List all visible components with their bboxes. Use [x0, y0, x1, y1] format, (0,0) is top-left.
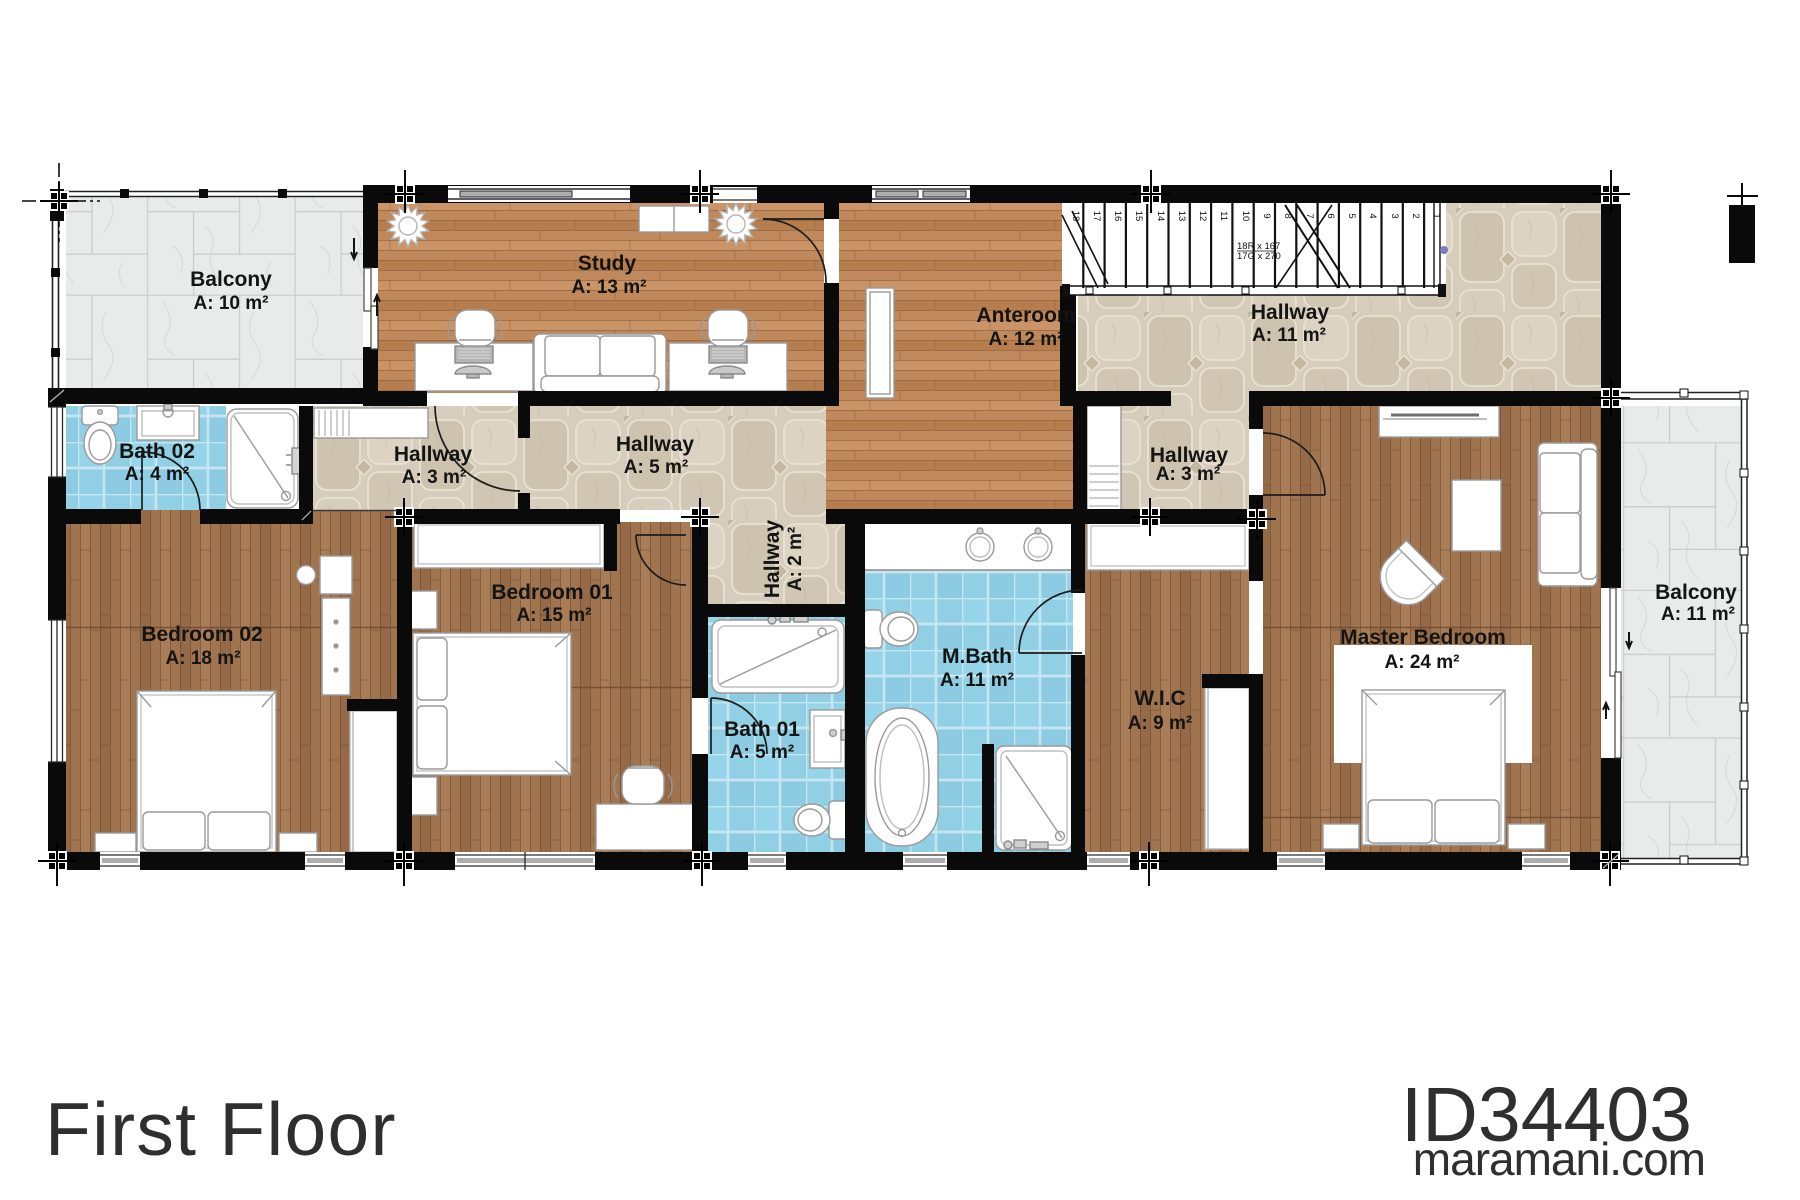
svg-text:A: 3 m²: A: 3 m² — [1156, 464, 1220, 485]
svg-text:6: 6 — [1325, 213, 1336, 218]
svg-text:11: 11 — [1218, 211, 1229, 221]
svg-text:1: 1 — [1431, 213, 1442, 218]
svg-text:Balcony: Balcony — [190, 268, 272, 291]
svg-text:A: 4 m²: A: 4 m² — [125, 464, 189, 485]
svg-text:Hallway: Hallway — [616, 433, 695, 456]
svg-text:8: 8 — [1282, 213, 1293, 218]
svg-text:14: 14 — [1155, 211, 1166, 222]
svg-text:Anteroom: Anteroom — [976, 304, 1075, 327]
svg-text:2: 2 — [1410, 213, 1421, 218]
svg-text:A: 2 m²: A: 2 m² — [785, 527, 806, 591]
svg-text:Balcony: Balcony — [1655, 581, 1737, 604]
svg-text:A: 11 m²: A: 11 m² — [940, 670, 1014, 691]
svg-text:17G x 270: 17G x 270 — [1237, 251, 1281, 262]
svg-text:A: 24 m²: A: 24 m² — [1385, 652, 1460, 673]
svg-text:A: 11 m²: A: 11 m² — [1252, 325, 1326, 346]
svg-text:Hallway: Hallway — [1251, 301, 1330, 324]
svg-text:5: 5 — [1346, 213, 1357, 218]
svg-text:16: 16 — [1112, 211, 1123, 222]
svg-text:Bedroom 01: Bedroom 01 — [491, 581, 613, 604]
svg-text:A: 12 m²: A: 12 m² — [989, 329, 1064, 350]
svg-text:A: 5 m²: A: 5 m² — [624, 457, 688, 478]
svg-text:A: 5 m²: A: 5 m² — [730, 742, 794, 763]
svg-text:A: 11 m²: A: 11 m² — [1661, 604, 1735, 625]
svg-text:17: 17 — [1091, 211, 1102, 222]
svg-text:7: 7 — [1304, 213, 1315, 218]
svg-text:Bath 01: Bath 01 — [724, 718, 800, 741]
svg-text:3: 3 — [1389, 213, 1400, 218]
svg-text:A: 3 m²: A: 3 m² — [402, 467, 466, 488]
svg-text:M.Bath: M.Bath — [942, 645, 1012, 668]
svg-text:13: 13 — [1176, 211, 1187, 222]
svg-text:15: 15 — [1133, 211, 1144, 222]
svg-text:9: 9 — [1261, 213, 1272, 218]
svg-text:4: 4 — [1367, 213, 1378, 218]
svg-text:A: 10 m²: A: 10 m² — [194, 293, 269, 314]
svg-text:Hallway: Hallway — [761, 520, 784, 599]
svg-text:A: 18 m²: A: 18 m² — [166, 648, 241, 669]
svg-text:Study: Study — [578, 252, 637, 275]
svg-text:Bedroom 02: Bedroom 02 — [141, 623, 262, 646]
svg-text:W.I.C: W.I.C — [1134, 687, 1185, 710]
svg-text:18: 18 — [1070, 211, 1081, 222]
svg-text:maramani.com: maramani.com — [1413, 1133, 1705, 1185]
svg-text:Hallway: Hallway — [394, 443, 473, 466]
svg-text:First Floor: First Floor — [45, 1087, 397, 1171]
svg-text:A: 13 m²: A: 13 m² — [572, 277, 647, 298]
svg-text:A: 9 m²: A: 9 m² — [1128, 713, 1192, 734]
svg-text:Master Bedroom: Master Bedroom — [1340, 626, 1506, 649]
svg-text:12: 12 — [1197, 211, 1208, 222]
svg-text:A: 15 m²: A: 15 m² — [517, 605, 592, 626]
svg-text:Bath 02: Bath 02 — [119, 440, 195, 463]
svg-text:10: 10 — [1240, 211, 1251, 222]
